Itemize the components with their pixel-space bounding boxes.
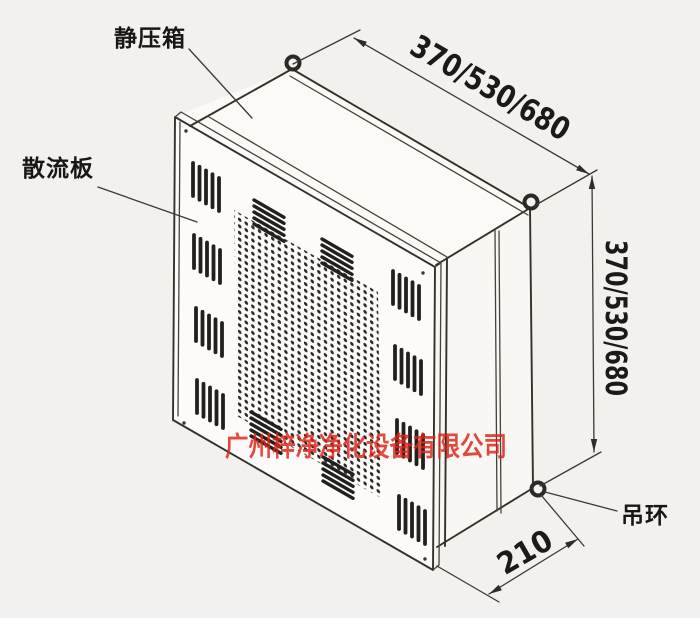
technical-drawing-page: 静压箱 散流板 吊环 370/530/680 370/530/680 210 广… xyxy=(0,0,700,618)
arrowhead xyxy=(589,176,595,189)
arrowhead xyxy=(354,38,367,47)
right-face xyxy=(433,208,533,570)
lifting-ring-label: 吊环 xyxy=(621,503,669,529)
isometric-plenum-box-drawing: 静压箱 散流板 吊环 370/530/680 370/530/680 210 广… xyxy=(0,0,700,618)
dimension-depth-label: 210 xyxy=(491,523,559,582)
arrowhead xyxy=(565,539,578,548)
dimension-height-label: 370/530/680 xyxy=(599,240,633,396)
lifting-ring-back-right xyxy=(525,196,538,209)
arrowhead xyxy=(576,165,589,174)
arrowhead xyxy=(591,439,597,452)
plenum-label: 静压箱 xyxy=(114,25,186,52)
dimension-width-label: 370/530/680 xyxy=(404,28,576,148)
arrowhead xyxy=(489,585,502,594)
company-watermark: 广州梓净净化设备有限公司 xyxy=(225,431,507,463)
diffuser-plate-label: 散流板 xyxy=(22,155,94,182)
lifting-ring-back-left xyxy=(287,57,300,70)
